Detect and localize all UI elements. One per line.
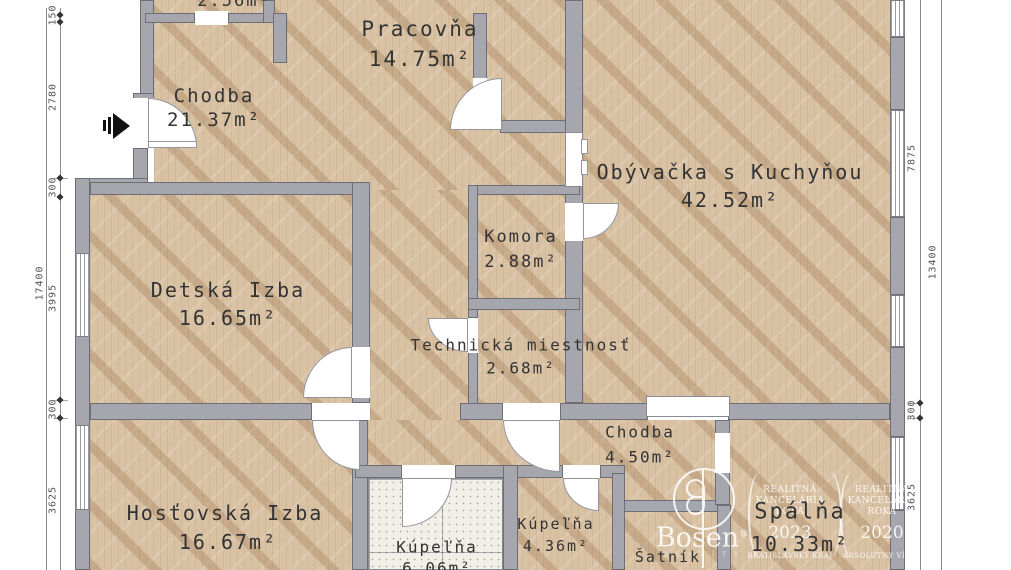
- room-label-closet: Šatník: [635, 548, 701, 566]
- room-area-living: 42.52m²: [681, 188, 779, 212]
- room-label-pantry: Komora: [484, 227, 557, 247]
- room-label-hall-small: Chodba: [605, 423, 675, 442]
- dimension-label-right-total: 13400: [928, 244, 939, 279]
- room-area-kids: 16.65m²: [179, 306, 277, 330]
- room-label-kids: Detská Izba: [151, 278, 305, 302]
- dimension-line: [920, 0, 921, 570]
- room-area-guest: 16.67m²: [179, 530, 277, 554]
- room-label-bedroom: Spálňa: [754, 500, 845, 525]
- room-area-bedroom: 10.33m²: [751, 532, 849, 556]
- room-label-utility: Technická miestnosť: [410, 336, 631, 355]
- dimension-label-left-total: 17400: [35, 265, 46, 300]
- room-label-guest: Hosťovská Izba: [127, 501, 324, 525]
- room-area-bath-large: 6.06m²: [402, 559, 472, 570]
- dimension-line: [60, 8, 61, 570]
- room-label-bath-small: Kúpeľňa: [517, 515, 594, 533]
- room-area-pantry: 2.88m²: [484, 252, 557, 272]
- room-label-living: Obývačka s Kuchyňou: [597, 160, 864, 184]
- floor-plan: 2.56m² Chodba 21.37m² Pracovňa 14.75m² O…: [0, 0, 1011, 570]
- room-label-small-top: 2.56m²: [197, 0, 270, 11]
- room-area-hall-main: 21.37m²: [167, 109, 261, 131]
- dimension-label: 3995: [48, 284, 59, 312]
- room-label-office: Pracovňa: [361, 17, 478, 41]
- room-label-hall-main: Chodba: [174, 85, 255, 107]
- dimension-label: 3625: [48, 486, 59, 514]
- dimension-label: 7875: [907, 144, 918, 172]
- room-area-office: 14.75m²: [369, 47, 472, 71]
- dimension-label: 3625: [907, 483, 918, 511]
- dimension-line: [941, 0, 942, 570]
- dimension-label: 2780: [48, 83, 59, 111]
- dimension-label: 300: [48, 176, 59, 197]
- room-area-hall-small: 4.50m²: [605, 448, 675, 467]
- room-label-bath-large: Kúpeľňa: [396, 538, 477, 557]
- room-area-bath-small: 4.36m²: [523, 537, 589, 555]
- room-area-utility: 2.68m²: [486, 359, 556, 378]
